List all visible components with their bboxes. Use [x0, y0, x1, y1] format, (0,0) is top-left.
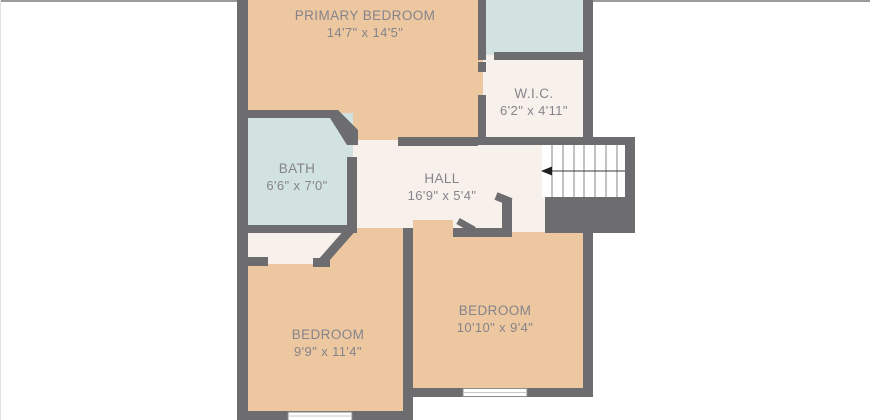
bedroom-right-doorway-floor	[413, 220, 453, 234]
ensuite-left-wall	[478, 0, 486, 60]
room-dimensions: 16'9" x 5'4"	[408, 188, 477, 205]
room-name: BEDROOM	[459, 303, 532, 320]
room-label-primary-bedroom: PRIMARY BEDROOM 14'7" x 14'5"	[295, 8, 436, 41]
room-label-bedroom-right: BEDROOM 10'10" x 9'4"	[457, 303, 534, 336]
bedroom-divider-wall	[403, 228, 413, 420]
hall-corner-diagonal	[496, 196, 511, 202]
bath-bottom-wall	[237, 225, 357, 233]
primary-bottom-wall-left	[237, 110, 332, 118]
primary-bottom-wall-right	[398, 137, 478, 146]
floor-plan-drawing	[0, 0, 870, 420]
room-dimensions: 6'2" x 4'11"	[500, 103, 568, 120]
stair-bottom-wall-block	[545, 197, 635, 233]
ensuite-bottom-wall	[494, 52, 593, 60]
room-name: HALL	[424, 171, 459, 188]
room-name: BATH	[279, 161, 316, 178]
floor-plan-image: PRIMARY BEDROOM 14'7" x 14'5" W.I.C. 6'2…	[0, 0, 870, 420]
hall-corner-wall	[502, 200, 512, 237]
room-dimensions: 9'9" x 11'4"	[294, 344, 362, 361]
closet-wall-stub	[237, 257, 268, 266]
bath-right-wall	[347, 157, 357, 233]
ensuite-bath-floor	[483, 0, 585, 57]
room-name: BEDROOM	[292, 327, 365, 344]
room-label-hall: HALL 16'9" x 5'4"	[408, 171, 477, 204]
ensuite-bottom-wall-stub	[478, 52, 486, 60]
room-name: W.I.C.	[514, 86, 553, 103]
room-label-bath: BATH 6'6" x 7'0"	[266, 161, 327, 194]
room-dimensions: 6'6" x 7'0"	[266, 178, 327, 195]
wic-left-wall-upper	[478, 62, 486, 72]
outer-wall-right-upper	[583, 0, 593, 142]
room-dimensions: 10'10" x 9'4"	[457, 320, 534, 337]
room-name: PRIMARY BEDROOM	[295, 8, 436, 25]
room-label-bedroom-left: BEDROOM 9'9" x 11'4"	[292, 327, 365, 360]
wic-bottom-wall	[478, 137, 635, 145]
room-dimensions: 14'7" x 14'5"	[327, 25, 404, 42]
outer-wall-left	[237, 0, 248, 420]
outer-wall-right-lower	[583, 231, 593, 397]
room-label-wic: W.I.C. 6'2" x 4'11"	[500, 86, 568, 119]
